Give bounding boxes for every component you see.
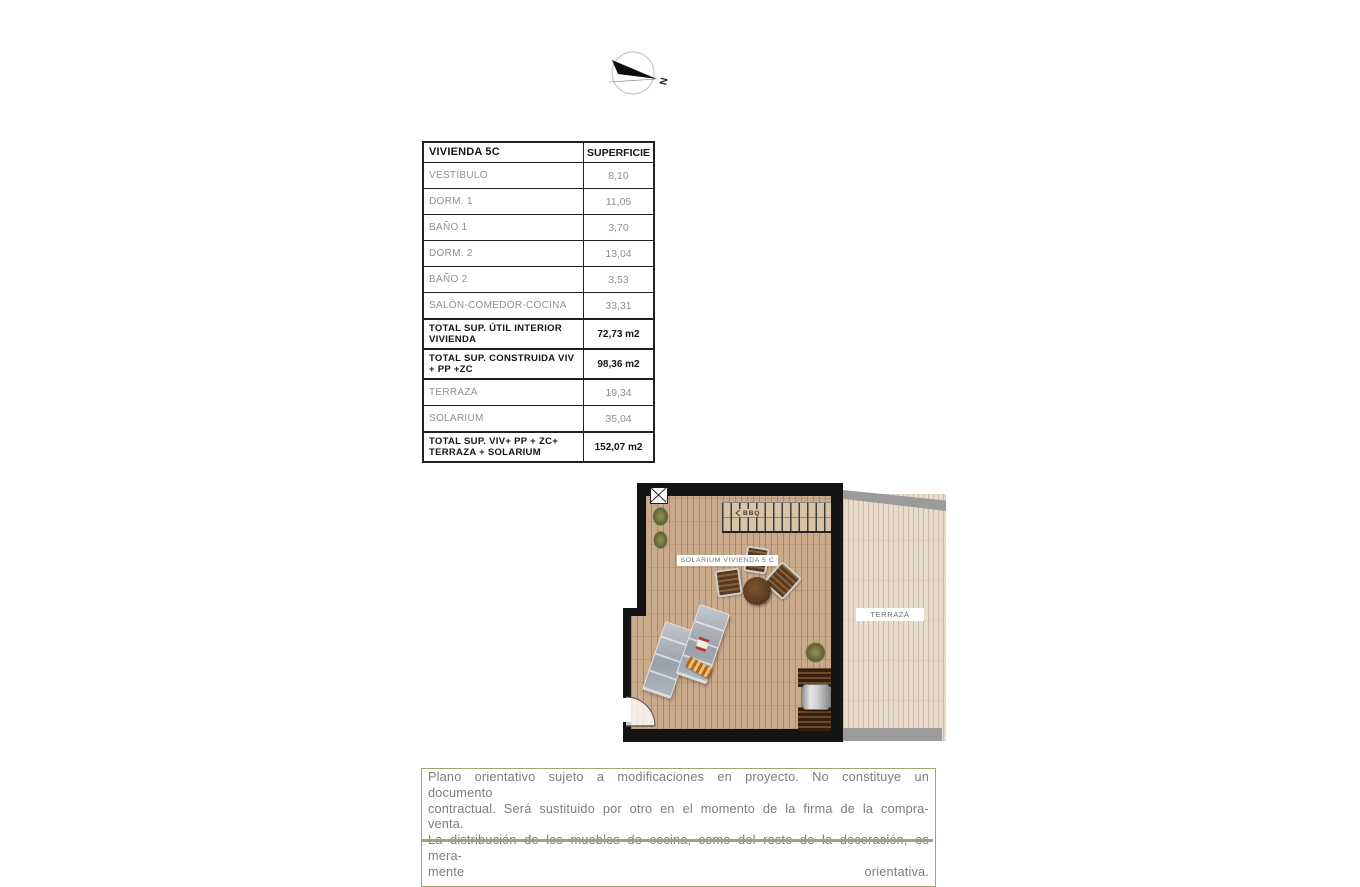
stairs-annotation: BBQ: [733, 509, 762, 517]
room-area-value: 11,05: [583, 189, 653, 214]
room-area-value: 33,31: [583, 293, 653, 318]
room-area-value: 13,04: [583, 241, 653, 266]
plant: [650, 504, 671, 529]
wall-right: [831, 483, 843, 742]
room-area-value: 72,73 m2: [583, 320, 653, 348]
table-header-area: SUPERFICIE: [583, 143, 653, 162]
table-row: BAÑO 1 3,70: [424, 214, 653, 240]
towel: [695, 636, 710, 652]
table-row: SALÓN-COMEDOR-COCINA 33,31: [424, 292, 653, 318]
table-row: TOTAL SUP. ÚTIL INTERIOR VIVIENDA 72,73 …: [424, 318, 653, 348]
bbq-label: BBQ: [743, 510, 760, 517]
table-header-name: VIVIENDA 5C: [424, 143, 583, 162]
table-row: BAÑO 2 3,53: [424, 266, 653, 292]
room-area-value: 8,10: [583, 163, 653, 188]
towel: [685, 656, 713, 678]
table-row: TOTAL SUP. CONSTRUIDA VIV + PP +ZC 98,36…: [424, 348, 653, 378]
disclaimer-line: Plano orientativo sujeto a modificacione…: [428, 770, 929, 802]
floor-plan: BBQ SOLARIUM VIVIENDA 5 C TERRAZA: [617, 478, 949, 746]
bbq-grill: [801, 684, 831, 710]
terraza-bottom-wall-band: [843, 728, 942, 741]
room-label: DORM. 2: [424, 241, 583, 266]
room-label: BAÑO 2: [424, 267, 583, 292]
room-label: SOLARIUM: [424, 406, 583, 431]
room-label: BAÑO 1: [424, 215, 583, 240]
staircase: BBQ: [722, 502, 831, 533]
terraza-label: TERRAZA: [856, 608, 924, 621]
arrow-left-icon: [735, 509, 741, 517]
bbq-counter: [798, 707, 831, 731]
room-label: VESTÍBULO: [424, 163, 583, 188]
room-area-value: 152,07 m2: [583, 433, 653, 461]
table-header-row: VIVIENDA 5C SUPERFICIE: [424, 143, 653, 162]
north-arrow-icon: N: [608, 46, 674, 102]
plant: [802, 639, 829, 666]
solarium-label: SOLARIUM VIVIENDA 5 C: [677, 555, 778, 566]
room-label: SALÓN-COMEDOR-COCINA: [424, 293, 583, 318]
surface-area-table: VIVIENDA 5C SUPERFICIE VESTÍBULO 8,10 DO…: [422, 141, 655, 463]
table-row: TERRAZA 19,34: [424, 378, 653, 405]
room-label: TOTAL SUP. ÚTIL INTERIOR VIVIENDA: [424, 320, 583, 348]
patio-chair: [714, 567, 743, 597]
room-area-value: 35,04: [583, 406, 653, 431]
round-table: [743, 577, 771, 605]
room-area-value: 3,70: [583, 215, 653, 240]
room-label: TERRAZA: [424, 380, 583, 405]
disclaimer-line: La distribución de los muebles de cocina…: [428, 833, 929, 865]
room-label: TOTAL SUP. VIV+ PP + ZC+ TERRAZA + SOLAR…: [424, 433, 583, 461]
wall-left-lower: [623, 608, 631, 698]
disclaimer-box: Plano orientativo sujeto a modificacione…: [421, 768, 936, 887]
north-label: N: [656, 76, 668, 86]
room-area-value: 19,34: [583, 380, 653, 405]
table-row: DORM. 1 11,05: [424, 188, 653, 214]
north-arrow-pointer: [612, 60, 657, 79]
shaft-x-marker-icon: [650, 487, 668, 504]
disclaimer-line: mente orientativa.: [428, 865, 929, 881]
door-swing-icon: [625, 696, 657, 728]
disclaimer-accent-bar: [422, 839, 933, 842]
wall-left-upper: [637, 483, 646, 616]
table-row: SOLARIUM 35,04: [424, 405, 653, 431]
table-row: VESTÍBULO 8,10: [424, 162, 653, 188]
table-row: TOTAL SUP. VIV+ PP + ZC+ TERRAZA + SOLAR…: [424, 431, 653, 461]
room-label: TOTAL SUP. CONSTRUIDA VIV + PP +ZC: [424, 350, 583, 378]
room-label: DORM. 1: [424, 189, 583, 214]
room-area-value: 3,53: [583, 267, 653, 292]
compass-chord-line: [609, 79, 657, 82]
room-area-value: 98,36 m2: [583, 350, 653, 378]
plant: [651, 528, 670, 552]
table-row: DORM. 2 13,04: [424, 240, 653, 266]
disclaimer-line: contractual. Será sustituido por otro en…: [428, 802, 929, 834]
